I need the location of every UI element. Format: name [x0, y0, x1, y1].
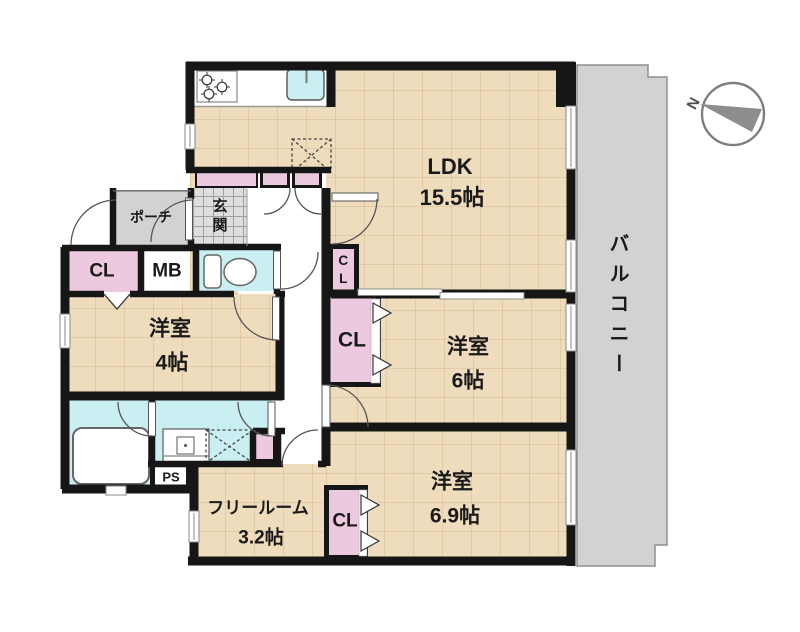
- shoe-cabinet: [195, 171, 258, 188]
- ldk-size: 15.5帖: [420, 187, 485, 209]
- bedroom6-9-closet-label: CL: [332, 512, 357, 531]
- hall-cabinet-left: [260, 170, 290, 188]
- linen-shelf-box: [251, 429, 277, 463]
- pipe-space-label: PS: [162, 471, 179, 484]
- free-room-size: 3.2帖: [238, 529, 283, 548]
- compass-icon: N: [684, 83, 764, 145]
- toilet-floor: [199, 250, 278, 291]
- bathroom-floor: [66, 398, 152, 489]
- meter-box-label: MB: [152, 262, 182, 281]
- bedroom4-label: 洋室: [149, 319, 191, 340]
- washroom-floor-lower: [152, 436, 253, 464]
- entrance-label: 玄関: [207, 190, 231, 243]
- room-bedroom4-floor: [66, 294, 280, 396]
- bedroom6-size: 6帖: [452, 371, 485, 392]
- entrance-closet-label: CL: [89, 262, 114, 281]
- balcony-label: バルコニー: [602, 198, 632, 418]
- hall-cabinet-right: [292, 170, 322, 188]
- bedroom6-9-label: 洋室: [431, 472, 473, 493]
- free-room-label: フリールーム: [207, 500, 309, 517]
- porch-label: ポーチ: [130, 210, 172, 224]
- bedroom4-size: 4帖: [156, 353, 189, 374]
- floor-plan-canvas: N LDK 15.5帖 洋室 6帖 洋室 6.9帖 洋室 4帖 フリールーム 3…: [0, 0, 800, 632]
- compass-north-label: N: [684, 95, 704, 113]
- hall-closet-label: CL: [332, 250, 354, 292]
- ldk-label: LDK: [427, 156, 472, 178]
- bedroom6-label: 洋室: [447, 337, 489, 358]
- bedroom6-closet-label: CL: [338, 330, 366, 351]
- bedroom6-9-size: 6.9帖: [430, 506, 480, 527]
